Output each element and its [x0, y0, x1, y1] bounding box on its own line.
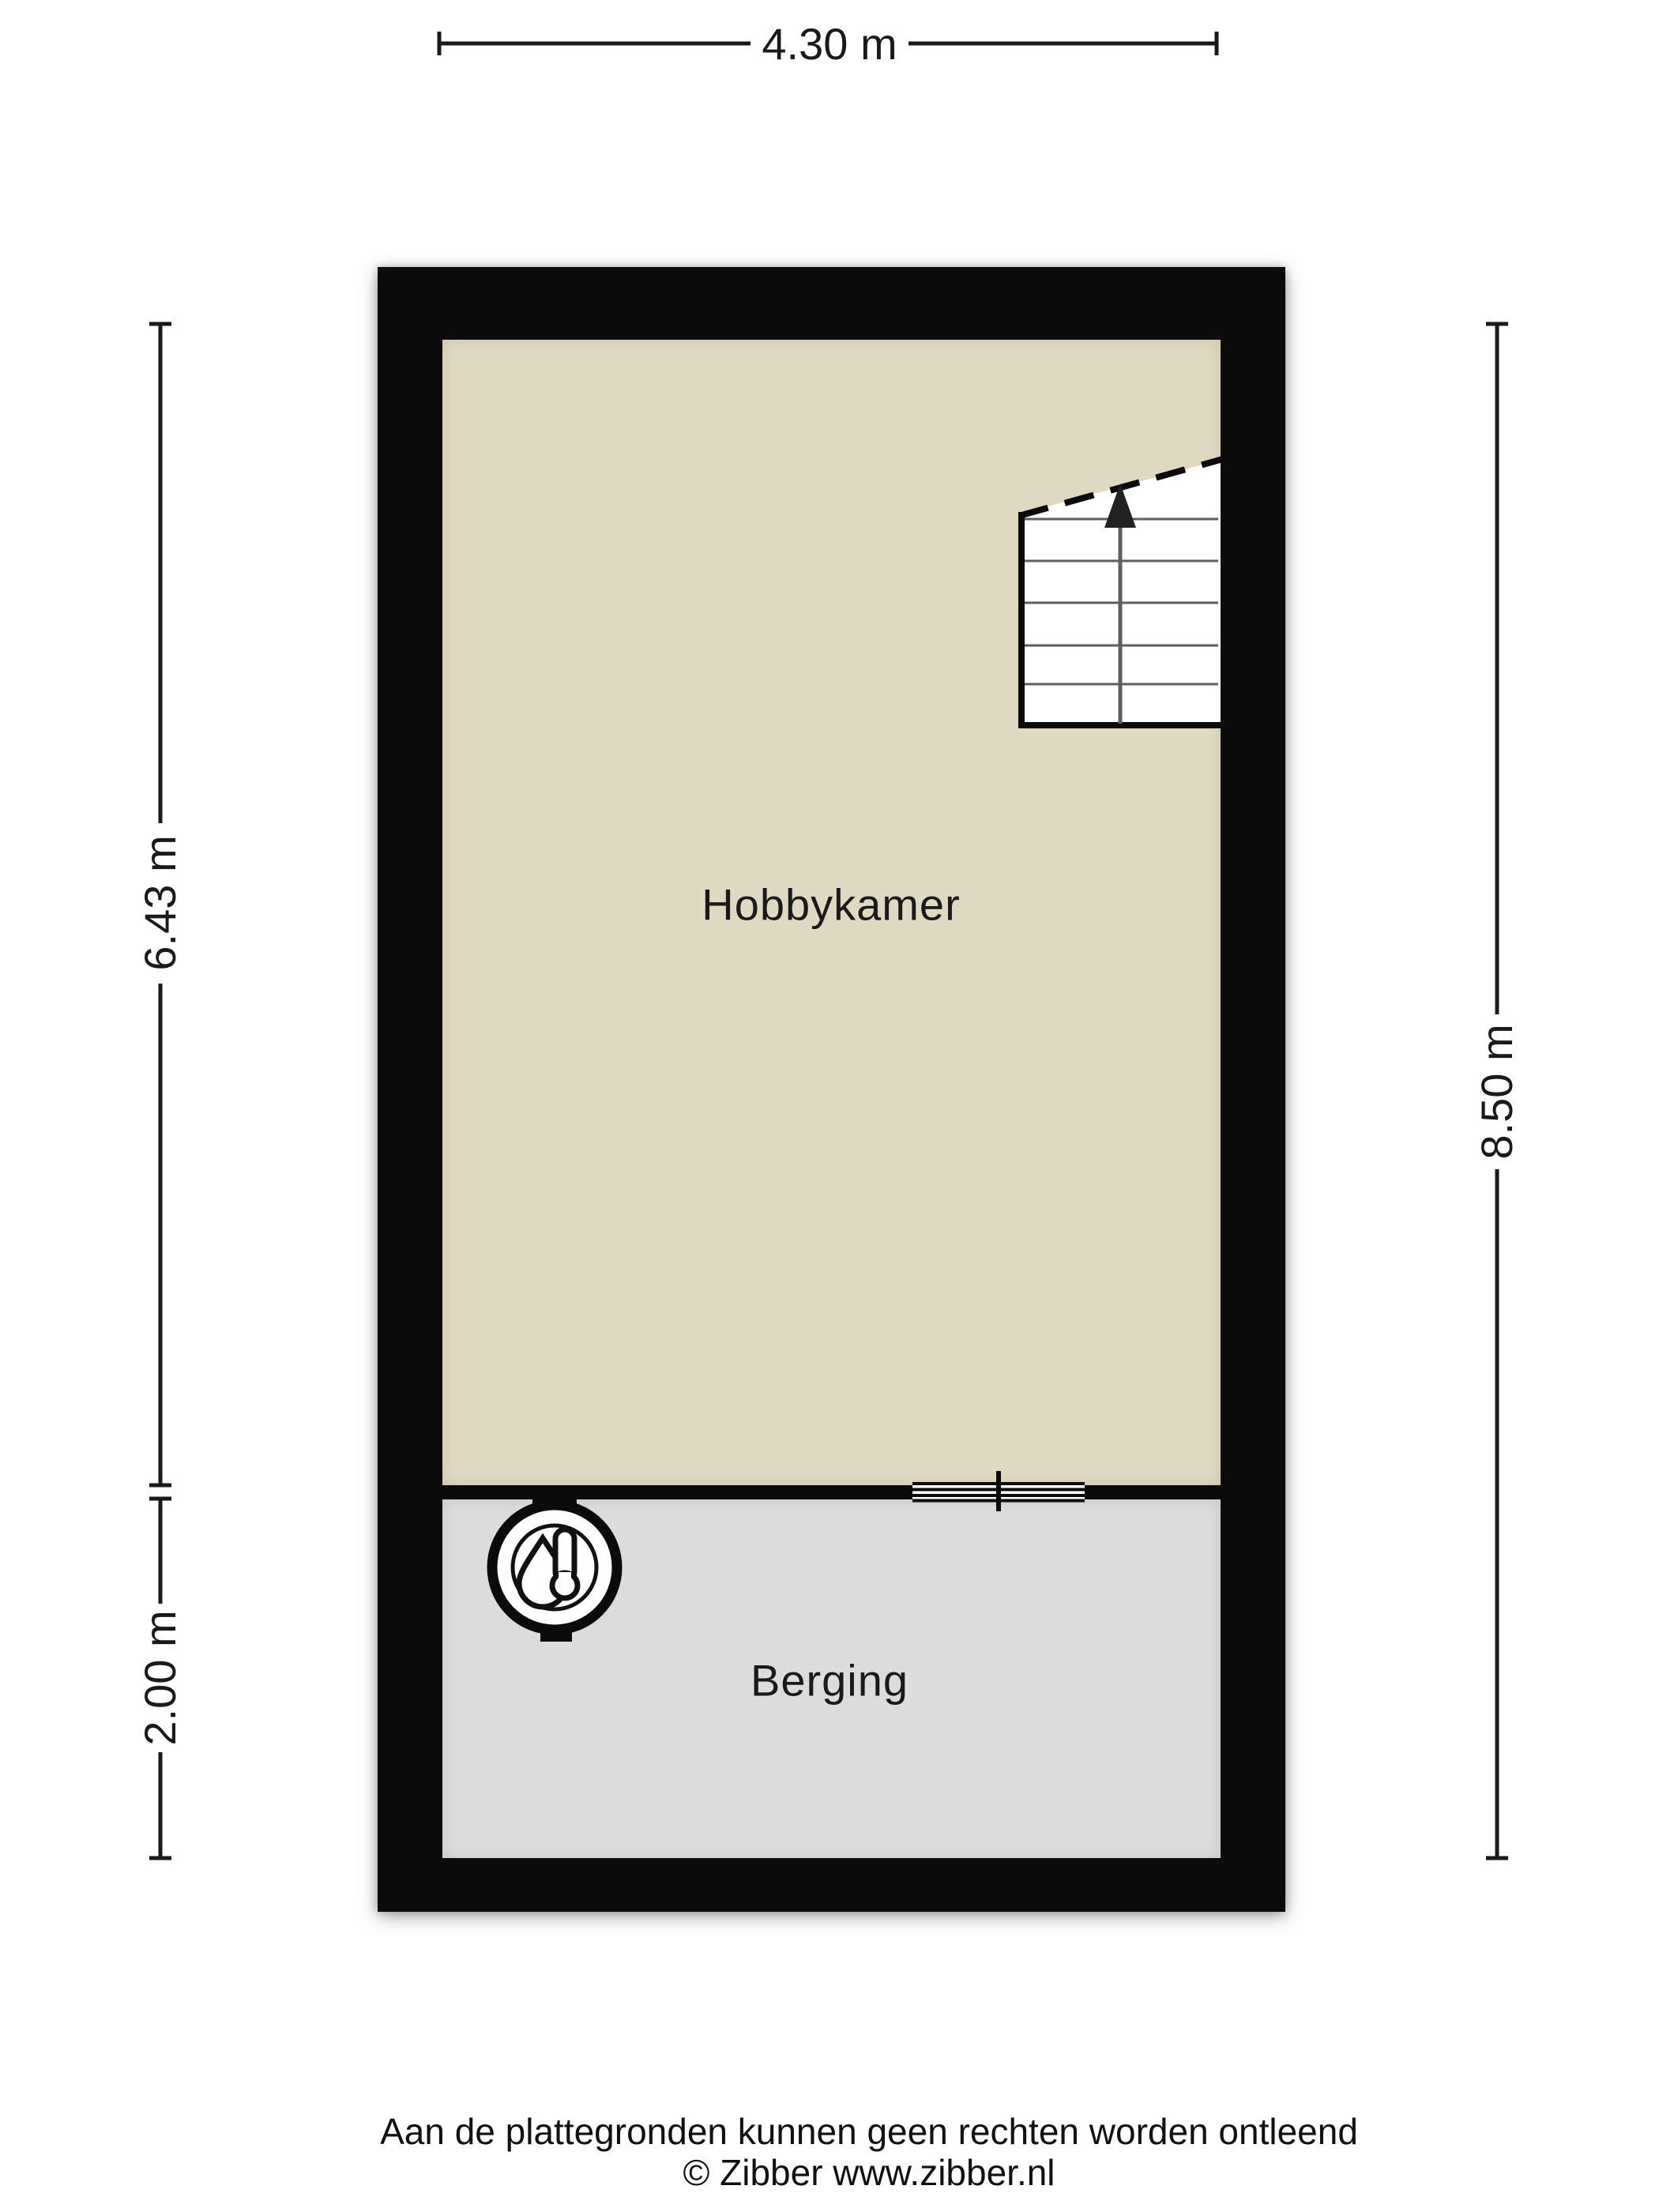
footer-copyright: © Zibber www.zibber.nl — [380, 2152, 1358, 2193]
dimension-label-right: 8.50 m — [1472, 1024, 1522, 1159]
dimension-left-lower — [149, 1499, 171, 1858]
room-label-berging: Berging — [750, 1655, 908, 1706]
footer: Aan de plattegronden kunnen geen rechten… — [380, 2111, 1358, 2193]
floorplan-page: Hobbykamer Berging — [0, 0, 1659, 2212]
dimension-left-upper — [149, 324, 171, 1485]
dimension-label-left-lower: 2.00 m — [135, 1610, 185, 1745]
dimension-label-left-upper: 6.43 m — [135, 835, 185, 970]
dimension-top — [439, 32, 1217, 55]
room-label-hobbykamer: Hobbykamer — [702, 879, 960, 931]
dimension-right — [1486, 324, 1508, 1858]
dimension-label-top: 4.30 m — [762, 19, 897, 69]
footer-disclaimer: Aan de plattegronden kunnen geen rechten… — [380, 2111, 1358, 2152]
interior-dividing-wall — [442, 1485, 1221, 1499]
